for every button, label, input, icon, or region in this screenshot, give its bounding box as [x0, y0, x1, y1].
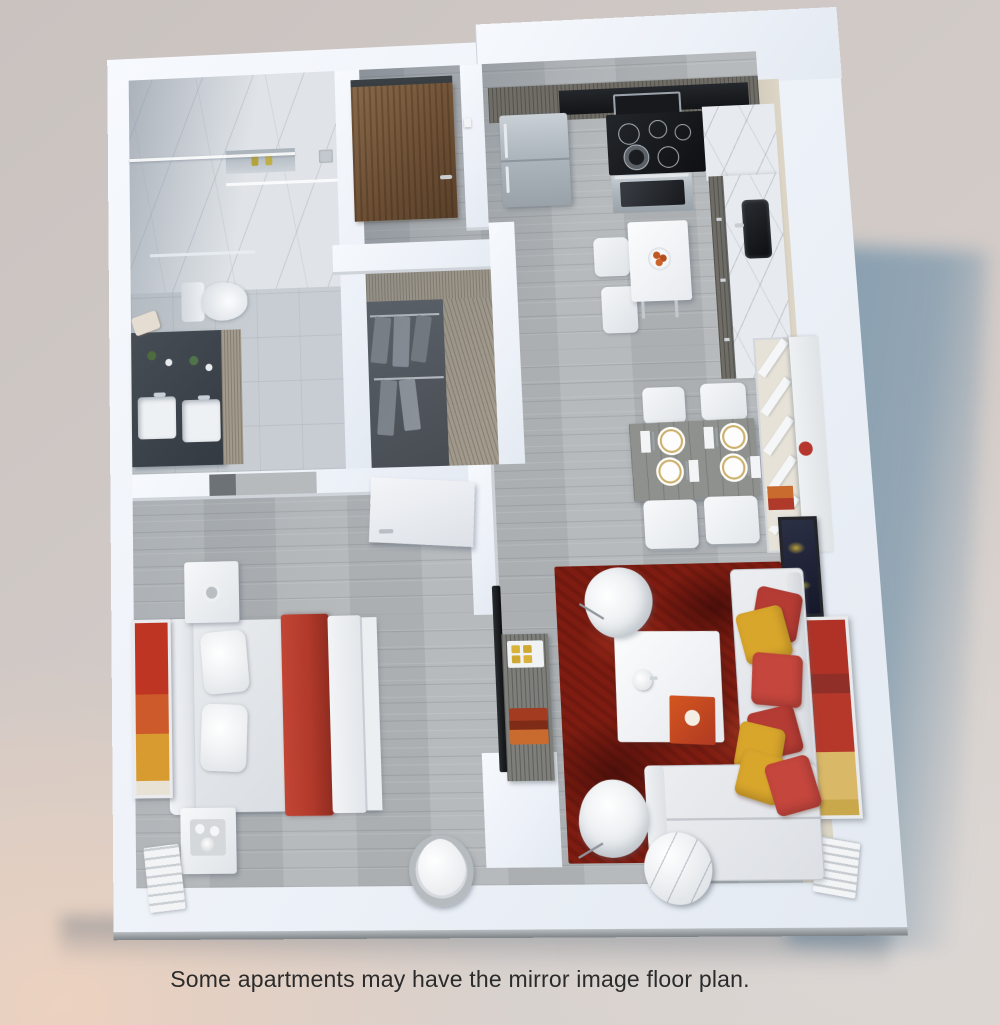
tray-snack [523, 655, 532, 663]
scene-backdrop: Some apartments may have the mirror imag… [0, 0, 1000, 1025]
vanity-sink [182, 399, 221, 442]
drawer-handle [720, 278, 725, 281]
dining-chair [704, 496, 761, 545]
tray-snack [511, 645, 520, 653]
drawer-handle [724, 338, 729, 341]
caption: Some apartments may have the mirror imag… [110, 966, 810, 993]
tray-snack [512, 655, 521, 663]
kettle-spout [650, 676, 658, 680]
tray-snack [523, 645, 532, 653]
kettle [632, 670, 653, 691]
dining-chair [642, 387, 686, 425]
sink-faucet-kitchen [734, 223, 744, 228]
sink-faucet [154, 392, 166, 397]
light-switch [464, 118, 471, 127]
book-cover-circle [684, 710, 700, 726]
shower-control [319, 149, 333, 163]
tray-cup [210, 826, 220, 836]
bedroom-door-handle [379, 529, 394, 534]
artwork-bedroom [132, 619, 173, 798]
pillow-red [751, 652, 803, 709]
drawer-handle [716, 218, 721, 221]
bed-pillow [200, 629, 250, 695]
dining-chair [700, 383, 748, 421]
oven-window [620, 180, 685, 207]
dining-chair [643, 499, 699, 549]
bed-pillow [200, 703, 248, 772]
tray-cup [195, 824, 205, 834]
entry-door [351, 83, 458, 222]
bedroom-door [369, 477, 475, 547]
console-books [509, 708, 549, 745]
sink-faucet [198, 395, 210, 400]
vanity-sink [138, 396, 177, 439]
bed-red-throw [281, 614, 334, 816]
bedroom-bench [143, 844, 185, 913]
vanity-drawers [221, 329, 244, 464]
door-handle [440, 175, 452, 180]
floor-plan [107, 7, 908, 940]
bedroom-doorway-gap [209, 474, 236, 496]
bar-chair [593, 237, 630, 277]
napkin [688, 460, 699, 482]
napkin [750, 456, 761, 478]
tray-bowl [201, 837, 215, 852]
counter-corner [702, 104, 780, 181]
napkin [703, 427, 714, 449]
kitchen-sink [741, 199, 772, 259]
napkin [640, 431, 651, 453]
